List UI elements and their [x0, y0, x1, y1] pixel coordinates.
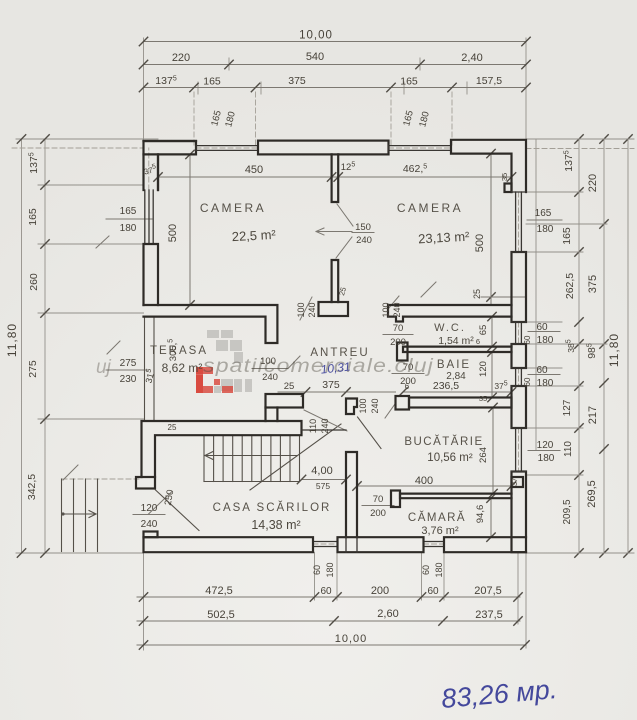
- svg-text:35: 35: [479, 394, 487, 403]
- svg-text:275: 275: [27, 360, 39, 378]
- svg-text:200: 200: [390, 337, 406, 348]
- svg-text:60: 60: [312, 565, 322, 575]
- svg-text:100: 100: [260, 356, 276, 367]
- svg-text:150: 150: [355, 222, 371, 233]
- svg-text:207,5: 207,5: [474, 585, 502, 597]
- svg-text:uj: uj: [96, 357, 112, 378]
- svg-text:180: 180: [120, 223, 137, 234]
- svg-text:CASA SCĂRILOR: CASA SCĂRILOR: [213, 501, 332, 514]
- svg-text:240: 240: [356, 235, 372, 246]
- svg-text:100: 100: [358, 398, 368, 413]
- svg-text:100: 100: [381, 302, 391, 317]
- svg-text:6: 6: [476, 337, 480, 346]
- svg-text:110: 110: [563, 441, 574, 457]
- svg-text:240: 240: [392, 302, 402, 317]
- svg-text:100: 100: [296, 302, 306, 317]
- svg-text:575: 575: [316, 481, 330, 491]
- svg-text:60: 60: [320, 586, 332, 597]
- svg-text:165: 165: [535, 208, 552, 219]
- svg-text:CAMERA: CAMERA: [200, 201, 266, 215]
- svg-text:500: 500: [167, 224, 179, 242]
- svg-text:2,60: 2,60: [377, 608, 398, 620]
- svg-text:65: 65: [478, 325, 489, 336]
- svg-text:260: 260: [28, 273, 40, 291]
- svg-text:342,5: 342,5: [26, 474, 38, 500]
- svg-text:ANTREU: ANTREU: [310, 347, 369, 359]
- svg-text:209,5: 209,5: [562, 499, 573, 524]
- svg-text:240: 240: [262, 372, 278, 383]
- svg-text:180: 180: [325, 562, 335, 577]
- svg-text:CAMERA: CAMERA: [397, 201, 463, 215]
- svg-text:180: 180: [434, 562, 444, 577]
- svg-text:217: 217: [587, 406, 599, 424]
- svg-text:14,38 m²: 14,38 m²: [251, 518, 300, 532]
- svg-text:165: 165: [120, 206, 137, 217]
- svg-text:275: 275: [120, 358, 137, 369]
- svg-text:264: 264: [478, 447, 489, 463]
- svg-text:375: 375: [587, 275, 599, 293]
- svg-text:240: 240: [307, 302, 317, 317]
- svg-text:180: 180: [538, 453, 555, 464]
- svg-text:180: 180: [537, 224, 554, 235]
- svg-text:262,5: 262,5: [564, 273, 576, 299]
- svg-text:472,5: 472,5: [205, 585, 233, 597]
- svg-text:25: 25: [472, 289, 482, 299]
- svg-text:CĂMARĂ: CĂMARĂ: [408, 511, 466, 524]
- svg-text:BUCĂTĂRIE: BUCĂTĂRIE: [404, 435, 483, 448]
- svg-text:25: 25: [284, 381, 295, 392]
- svg-text:spatiicomerciale.cluj: spatiicomerciale.cluj: [203, 356, 434, 377]
- svg-text:400: 400: [415, 475, 433, 487]
- svg-text:375: 375: [288, 75, 306, 87]
- svg-text:200: 200: [371, 585, 389, 597]
- svg-text:375: 375: [322, 379, 340, 391]
- svg-text:165: 165: [400, 76, 418, 88]
- svg-text:200: 200: [370, 508, 386, 519]
- svg-text:120: 120: [537, 440, 554, 451]
- svg-text:60: 60: [523, 335, 532, 344]
- svg-text:BAIE: BAIE: [437, 359, 471, 371]
- svg-text:220: 220: [587, 174, 599, 192]
- svg-text:3,76 m²: 3,76 m²: [421, 525, 459, 537]
- svg-text:23,13 m²: 23,13 m²: [418, 229, 471, 247]
- svg-text:236,5: 236,5: [433, 380, 459, 392]
- svg-text:240: 240: [370, 398, 380, 413]
- svg-text:180: 180: [537, 378, 554, 389]
- svg-text:10,00: 10,00: [299, 30, 333, 42]
- svg-text:60: 60: [536, 322, 548, 333]
- svg-text:165: 165: [27, 208, 39, 226]
- svg-text:165: 165: [561, 227, 573, 245]
- svg-text:35: 35: [500, 173, 509, 181]
- svg-text:6: 6: [405, 382, 410, 391]
- svg-text:60: 60: [523, 377, 532, 386]
- svg-text:165: 165: [203, 76, 221, 88]
- svg-text:220: 220: [172, 52, 190, 64]
- svg-text:240: 240: [320, 418, 330, 433]
- svg-text:10,00: 10,00: [335, 633, 368, 645]
- svg-text:502,5: 502,5: [207, 609, 235, 621]
- svg-text:25: 25: [168, 423, 177, 432]
- svg-text:37: 37: [510, 478, 519, 486]
- svg-text:500: 500: [474, 234, 486, 252]
- svg-text:10,56 m²: 10,56 m²: [427, 452, 473, 464]
- svg-text:1,54 m²: 1,54 m²: [438, 335, 474, 347]
- svg-text:11,80: 11,80: [607, 333, 621, 367]
- svg-text:22,5 m²: 22,5 m²: [231, 227, 276, 244]
- svg-text:240: 240: [141, 519, 158, 530]
- svg-text:230: 230: [120, 374, 137, 385]
- svg-text:70: 70: [373, 494, 384, 505]
- svg-text:60: 60: [421, 565, 431, 575]
- svg-text:94,6: 94,6: [475, 505, 486, 524]
- svg-text:127: 127: [562, 399, 573, 416]
- svg-text:W.C.: W.C.: [434, 322, 466, 334]
- svg-text:237,5: 237,5: [475, 609, 503, 621]
- svg-text:450: 450: [245, 164, 263, 176]
- svg-text:540: 540: [306, 51, 324, 63]
- svg-text:8,62 m²: 8,62 m²: [162, 361, 203, 375]
- svg-text:120: 120: [141, 503, 158, 514]
- svg-text:70: 70: [393, 323, 404, 334]
- svg-text:157,5: 157,5: [476, 75, 502, 87]
- svg-text:2,40: 2,40: [461, 52, 482, 64]
- svg-text:4,00: 4,00: [311, 465, 332, 477]
- svg-text:TERASA: TERASA: [150, 345, 208, 357]
- svg-text:70: 70: [403, 362, 414, 373]
- svg-text:180: 180: [537, 335, 554, 346]
- svg-text:120: 120: [478, 361, 489, 377]
- svg-text:11,80: 11,80: [5, 323, 19, 357]
- svg-text:60: 60: [536, 365, 548, 376]
- svg-text:110: 110: [308, 419, 318, 433]
- svg-text:60: 60: [427, 586, 439, 597]
- svg-text:269,5: 269,5: [586, 480, 598, 508]
